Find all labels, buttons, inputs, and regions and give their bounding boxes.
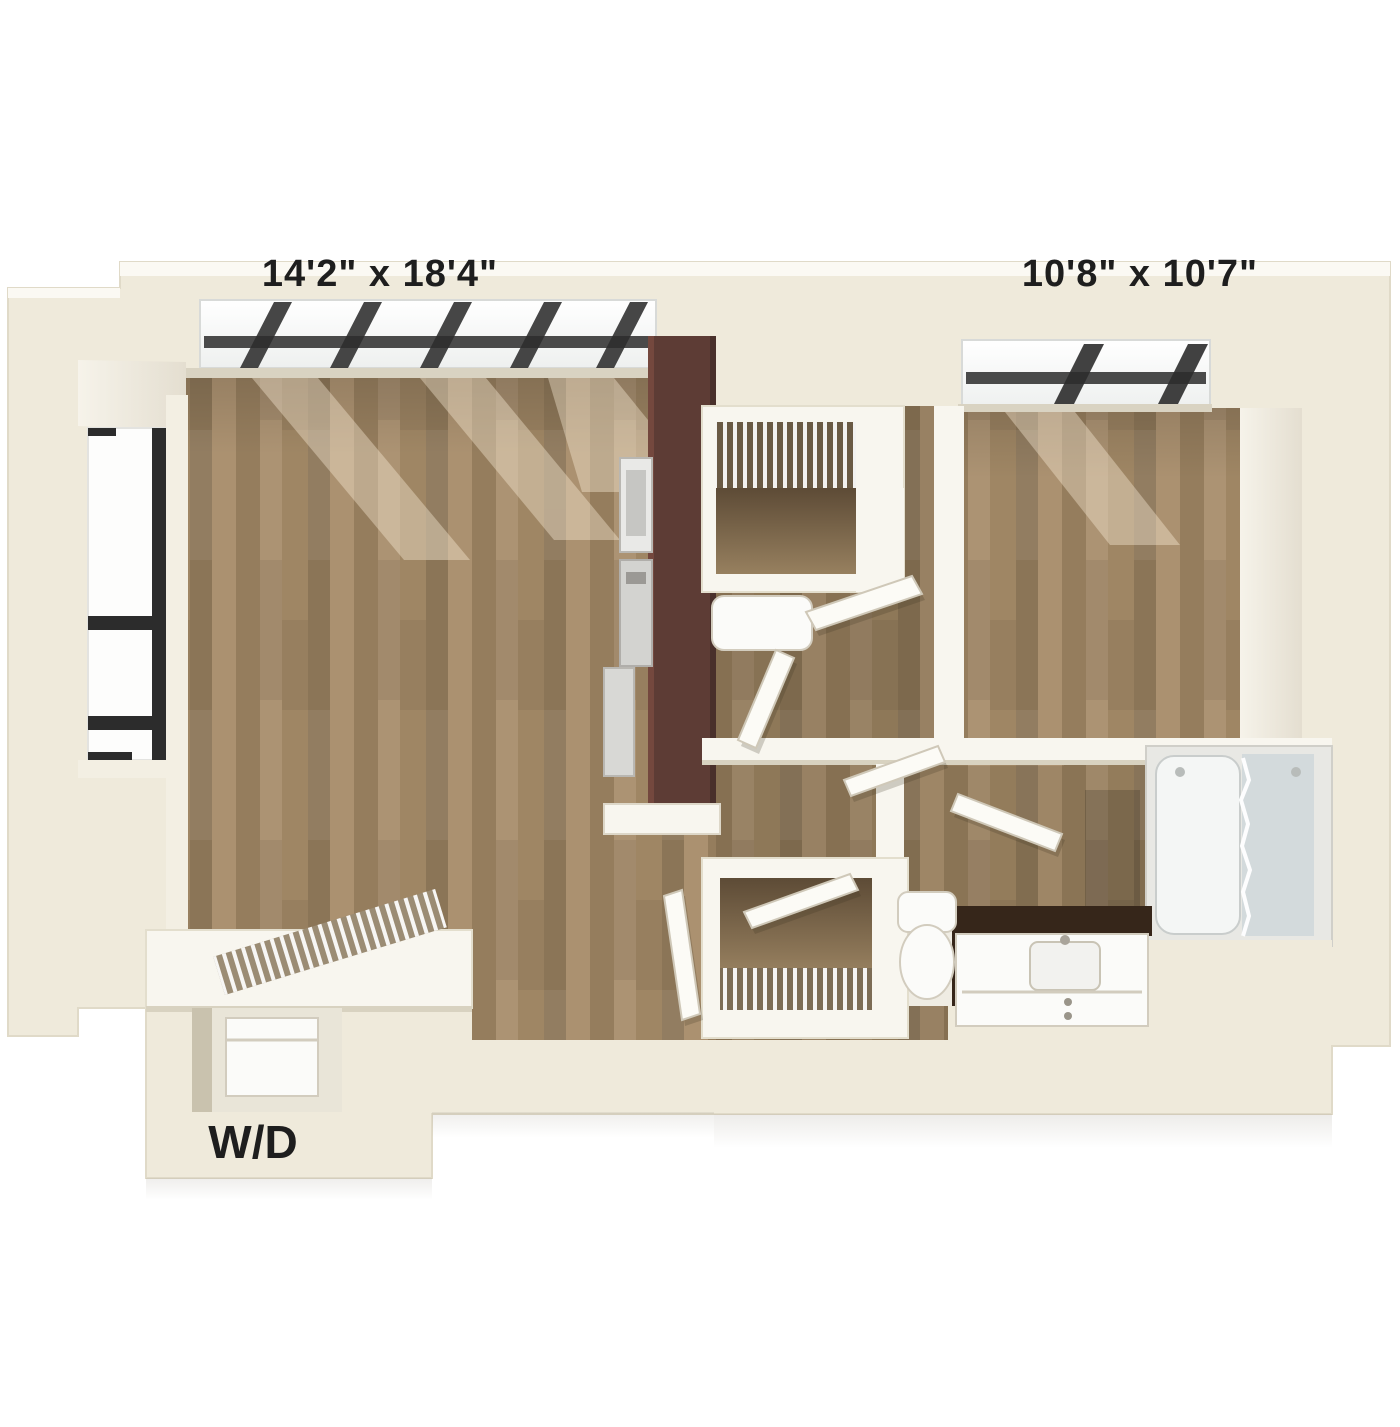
living-room-dimensions-label: 14'2" x 18'4" xyxy=(262,253,498,295)
shower-glass xyxy=(1242,754,1314,936)
floor-plan-page: W/D xyxy=(0,0,1400,1427)
wall-drop-shadow xyxy=(432,1112,714,1138)
window-sill-strip xyxy=(166,395,188,955)
bedroom-windows xyxy=(958,340,1212,412)
linen-closet xyxy=(702,858,908,1038)
kitchen-counter xyxy=(604,804,720,834)
wall-drop-shadow xyxy=(714,1114,1332,1148)
wall-drop-shadow xyxy=(146,1178,432,1200)
washer-dryer-unit xyxy=(226,1018,318,1096)
floor-plan-image: W/D xyxy=(0,0,1400,1427)
bathtub xyxy=(1146,746,1332,1006)
bedroom-dimensions-label: 10'8" x 10'7" xyxy=(1022,253,1258,295)
living-room-windows xyxy=(186,300,656,378)
bedroom-right-wall-face xyxy=(1240,408,1302,738)
wire-shelf xyxy=(720,968,872,1010)
top-left-wall-highlight xyxy=(8,288,120,298)
vanity-sink xyxy=(952,906,1152,1026)
hall-bedroom-wall xyxy=(934,406,964,758)
entry-shelf xyxy=(712,596,812,650)
washer-dryer-label: W/D xyxy=(208,1116,297,1168)
wire-shelf xyxy=(716,422,856,488)
toilet xyxy=(898,892,956,999)
